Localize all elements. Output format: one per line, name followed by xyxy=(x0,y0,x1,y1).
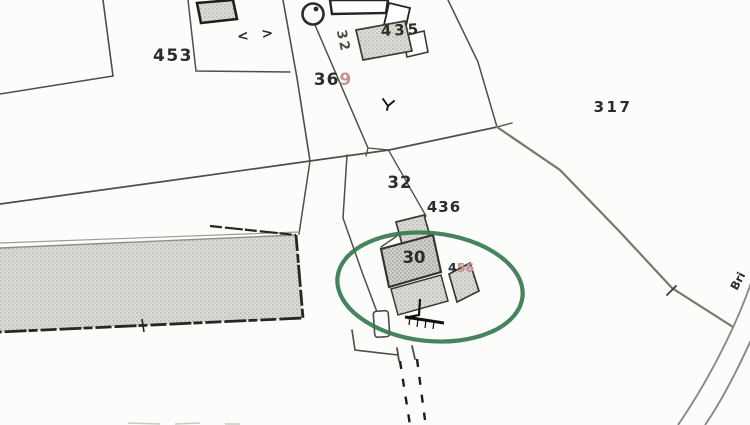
parcel-label-369-dark: 36 xyxy=(314,70,340,90)
well-dot-icon xyxy=(314,7,319,12)
map-background xyxy=(0,0,750,425)
scanned-map: 453 369 435 32 317 32 436 30 456 < > Bri xyxy=(0,0,750,425)
parcel-label-435: 435 xyxy=(380,20,421,40)
shed-building-topleft xyxy=(197,0,237,23)
parcel-label-317: 317 xyxy=(594,98,633,116)
parcel-label-32: 32 xyxy=(388,173,413,192)
house-label-456-faded: 56 xyxy=(457,260,475,275)
barn-fill xyxy=(0,235,303,332)
parcel-label-453: 453 xyxy=(153,46,193,66)
house-label-30: 30 xyxy=(403,248,426,267)
parcel-label-436: 436 xyxy=(427,198,461,216)
parcel-label-369: 369 xyxy=(314,70,353,90)
house-label-456-dark: 4 xyxy=(448,260,457,275)
parcel-label-369-faded: 9 xyxy=(339,70,352,90)
building-outline-a xyxy=(330,0,388,14)
map-canvas: 453 369 435 32 317 32 436 30 456 < > Bri xyxy=(0,0,750,425)
house-label-456: 456 xyxy=(448,260,474,275)
